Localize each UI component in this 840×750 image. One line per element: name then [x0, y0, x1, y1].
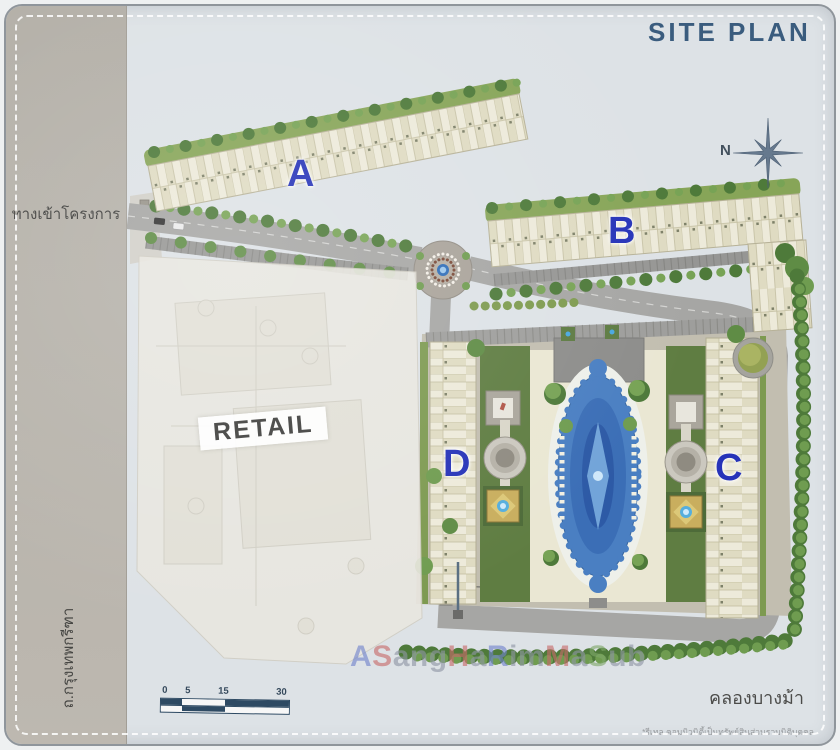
- watermark-segment: S: [588, 640, 609, 673]
- watermark-segment: im: [509, 640, 545, 673]
- watermark-segment: ang: [393, 640, 448, 673]
- watermark-segment: H: [448, 640, 470, 673]
- compass-north-label: N: [720, 142, 731, 159]
- watermark-segment: a: [470, 640, 487, 673]
- roundabout-fountain-icon: [414, 241, 472, 299]
- scale-bar: 0 5 15 30: [152, 685, 322, 718]
- building-d-label: D: [443, 443, 470, 486]
- page-title: SITE PLAN: [648, 17, 811, 48]
- compass-rose-icon: [733, 118, 803, 188]
- watermark-segment: a: [571, 640, 588, 673]
- watermark-segment: M: [545, 640, 571, 673]
- site-plan-drawing: [6, 6, 836, 746]
- disclaimer-text: *รีเทล คอมมิวนิตี้เป็นทรัพย์สินส่วนรวมนิ…: [614, 725, 814, 739]
- watermark-segment: ub: [608, 640, 646, 673]
- scale-bar-segments: [160, 698, 290, 715]
- scale-tick: 15: [218, 686, 229, 697]
- watermark-segment: R: [487, 640, 509, 673]
- building-b-label: B: [608, 210, 635, 253]
- scale-tick: 30: [276, 687, 287, 698]
- watermark-segment: S: [372, 640, 393, 673]
- watermark-segment: A: [350, 640, 372, 673]
- retail-area: [137, 256, 422, 664]
- photo-frame: SITE PLAN N A B C D RETAIL ทางเข้าโครงกา…: [4, 4, 836, 746]
- scale-tick: 0: [162, 685, 167, 696]
- west-road-label: ถ.กรุงเทพกรีฑา: [56, 558, 80, 746]
- building-c-label: C: [715, 447, 742, 490]
- entrance-road-label: ทางเข้าโครงการ: [9, 202, 123, 226]
- watermark: ASangHaRimMaSub: [350, 640, 646, 674]
- scale-tick: 5: [185, 685, 190, 696]
- canal-label: คลองบางม้า: [604, 683, 804, 712]
- building-a-label: A: [287, 153, 314, 196]
- site-plan-photo: SITE PLAN N A B C D RETAIL ทางเข้าโครงกา…: [0, 0, 840, 750]
